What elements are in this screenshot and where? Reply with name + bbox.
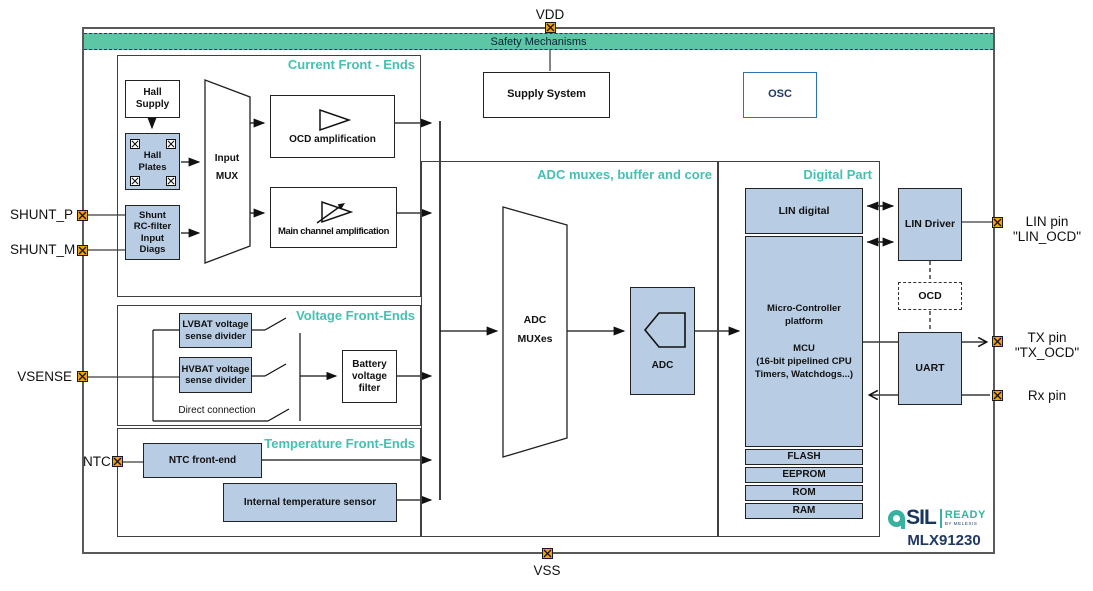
shunt-m-pin bbox=[77, 245, 88, 256]
vss-pin bbox=[542, 548, 553, 559]
vdd-pin bbox=[545, 22, 556, 33]
shunt-rc-filter-block: Shunt RC-filter Input Diags bbox=[125, 205, 180, 260]
adc-section-title: ADC muxes, buffer and core bbox=[480, 167, 712, 182]
lin-pin bbox=[992, 217, 1003, 228]
memory-block-rom: ROM bbox=[745, 485, 863, 501]
asil-logo-sil-text: SIL bbox=[906, 506, 936, 530]
pin-cross-icon bbox=[993, 337, 1002, 346]
tx-pin-label: TX pin "TX_OCD" bbox=[1004, 330, 1090, 360]
adc-label: ADC bbox=[652, 360, 674, 372]
hall-plate-cross-icon bbox=[130, 139, 140, 149]
ntc-front-end-block: NTC front-end bbox=[143, 443, 262, 478]
current-front-ends-title: Current Front - Ends bbox=[240, 57, 415, 72]
shunt-p-pin-label: SHUNT_P bbox=[10, 207, 72, 222]
pin-cross-icon bbox=[78, 372, 87, 381]
hvbat-divider-block: HVBAT voltage sense divider bbox=[179, 357, 252, 393]
direct-connection-label: Direct connection bbox=[166, 404, 268, 418]
mcu-platform-block: Micro-Controller platform MCU (16-bit pi… bbox=[745, 236, 863, 447]
pin-cross-icon bbox=[543, 549, 552, 558]
lin-pin-label-line1: LIN pin bbox=[1004, 214, 1090, 229]
asil-logo-divider bbox=[940, 509, 942, 528]
ocd-amplification-label: OCD amplification bbox=[289, 134, 376, 146]
digital-part-title: Digital Part bbox=[750, 167, 872, 182]
amplifier-icon bbox=[313, 108, 353, 132]
tx-pin-label-line2: "TX_OCD" bbox=[1004, 345, 1090, 360]
main-channel-amplification-block: Main channel amplification bbox=[270, 187, 397, 248]
vdd-pin-label: VDD bbox=[520, 7, 580, 22]
ocd-block: OCD bbox=[898, 282, 962, 310]
pin-cross-icon bbox=[113, 457, 122, 466]
hall-plates-block: Hall Plates bbox=[125, 133, 180, 190]
pin-cross-icon bbox=[993, 391, 1002, 400]
part-number: MLX91230 bbox=[898, 532, 990, 549]
hall-plate-cross-icon bbox=[166, 139, 176, 149]
battery-voltage-filter-block: Battery voltage filter bbox=[342, 350, 397, 403]
vss-pin-label: VSS bbox=[517, 563, 577, 578]
safety-mechanisms-label: Safety Mechanisms bbox=[491, 36, 587, 48]
internal-temperature-sensor-block: Internal temperature sensor bbox=[223, 483, 397, 522]
pin-cross-icon bbox=[78, 211, 87, 220]
hall-plates-label: Hall Plates bbox=[139, 150, 167, 173]
pin-cross-icon bbox=[993, 218, 1002, 227]
tx-pin bbox=[992, 336, 1003, 347]
lin-digital-block: LIN digital bbox=[745, 188, 863, 234]
tx-pin-label-line1: TX pin bbox=[1004, 330, 1090, 345]
variable-amplifier-icon bbox=[313, 198, 355, 224]
safety-mechanisms-bar: Safety Mechanisms bbox=[84, 33, 993, 50]
memory-block-eeprom: EEPROM bbox=[745, 467, 863, 483]
osc-block: OSC bbox=[743, 72, 817, 118]
ntc-pin bbox=[112, 456, 123, 467]
pin-cross-icon bbox=[78, 246, 87, 255]
ocd-amplification-block: OCD amplification bbox=[270, 95, 395, 158]
memory-block-ram: RAM bbox=[745, 503, 863, 519]
supply-system-block: Supply System bbox=[483, 72, 610, 118]
asil-ready-logo: SIL READY BY MELEXIS bbox=[884, 504, 990, 532]
asil-logo-a-icon bbox=[888, 510, 905, 527]
adc-muxes-label: ADC MUXes bbox=[508, 308, 562, 352]
voltage-front-ends-title: Voltage Front-Ends bbox=[240, 308, 415, 323]
uart-block: UART bbox=[898, 332, 962, 405]
vsense-pin bbox=[77, 371, 88, 382]
hall-supply-block: Hall Supply bbox=[125, 80, 180, 118]
adc-block: ADC bbox=[630, 287, 695, 395]
hall-plate-cross-icon bbox=[166, 176, 176, 186]
rx-pin bbox=[992, 390, 1003, 401]
vsense-pin-label: VSENSE bbox=[10, 369, 72, 384]
lin-pin-label: LIN pin "LIN_OCD" bbox=[1004, 214, 1090, 244]
rx-pin-label: Rx pin bbox=[1004, 388, 1090, 403]
asil-logo-ready-text: READY bbox=[945, 510, 986, 521]
input-mux-label: Input MUX bbox=[202, 148, 252, 188]
asil-logo-by-melexis-text: BY MELEXIS bbox=[945, 522, 986, 527]
main-channel-amplification-label: Main channel amplification bbox=[278, 226, 389, 237]
memory-block-flash: FLASH bbox=[745, 449, 863, 465]
shunt-p-pin bbox=[77, 210, 88, 221]
adc-core-icon bbox=[638, 310, 688, 350]
block-diagram-canvas: Safety Mechanisms Current Front - Ends V… bbox=[0, 0, 1093, 591]
lvbat-divider-block: LVBAT voltage sense divider bbox=[179, 313, 252, 348]
asil-logo-ready-stack: READY BY MELEXIS bbox=[945, 510, 986, 527]
shunt-m-pin-label: SHUNT_M bbox=[10, 242, 72, 257]
hall-plate-cross-icon bbox=[130, 176, 140, 186]
lin-driver-block: LIN Driver bbox=[898, 188, 962, 261]
lin-pin-label-line2: "LIN_OCD" bbox=[1004, 229, 1090, 244]
ntc-pin-label: NTC bbox=[83, 454, 111, 469]
pin-cross-icon bbox=[546, 23, 555, 32]
